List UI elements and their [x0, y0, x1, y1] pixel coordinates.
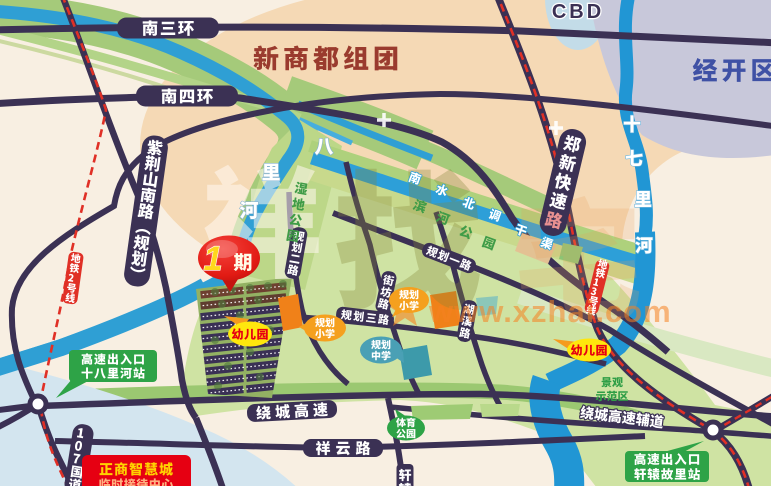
- svg-text:www.xzhai.com: www.xzhai.com: [428, 294, 672, 329]
- svg-text:1: 1: [204, 240, 223, 278]
- svg-text:CBD: CBD: [552, 1, 604, 23]
